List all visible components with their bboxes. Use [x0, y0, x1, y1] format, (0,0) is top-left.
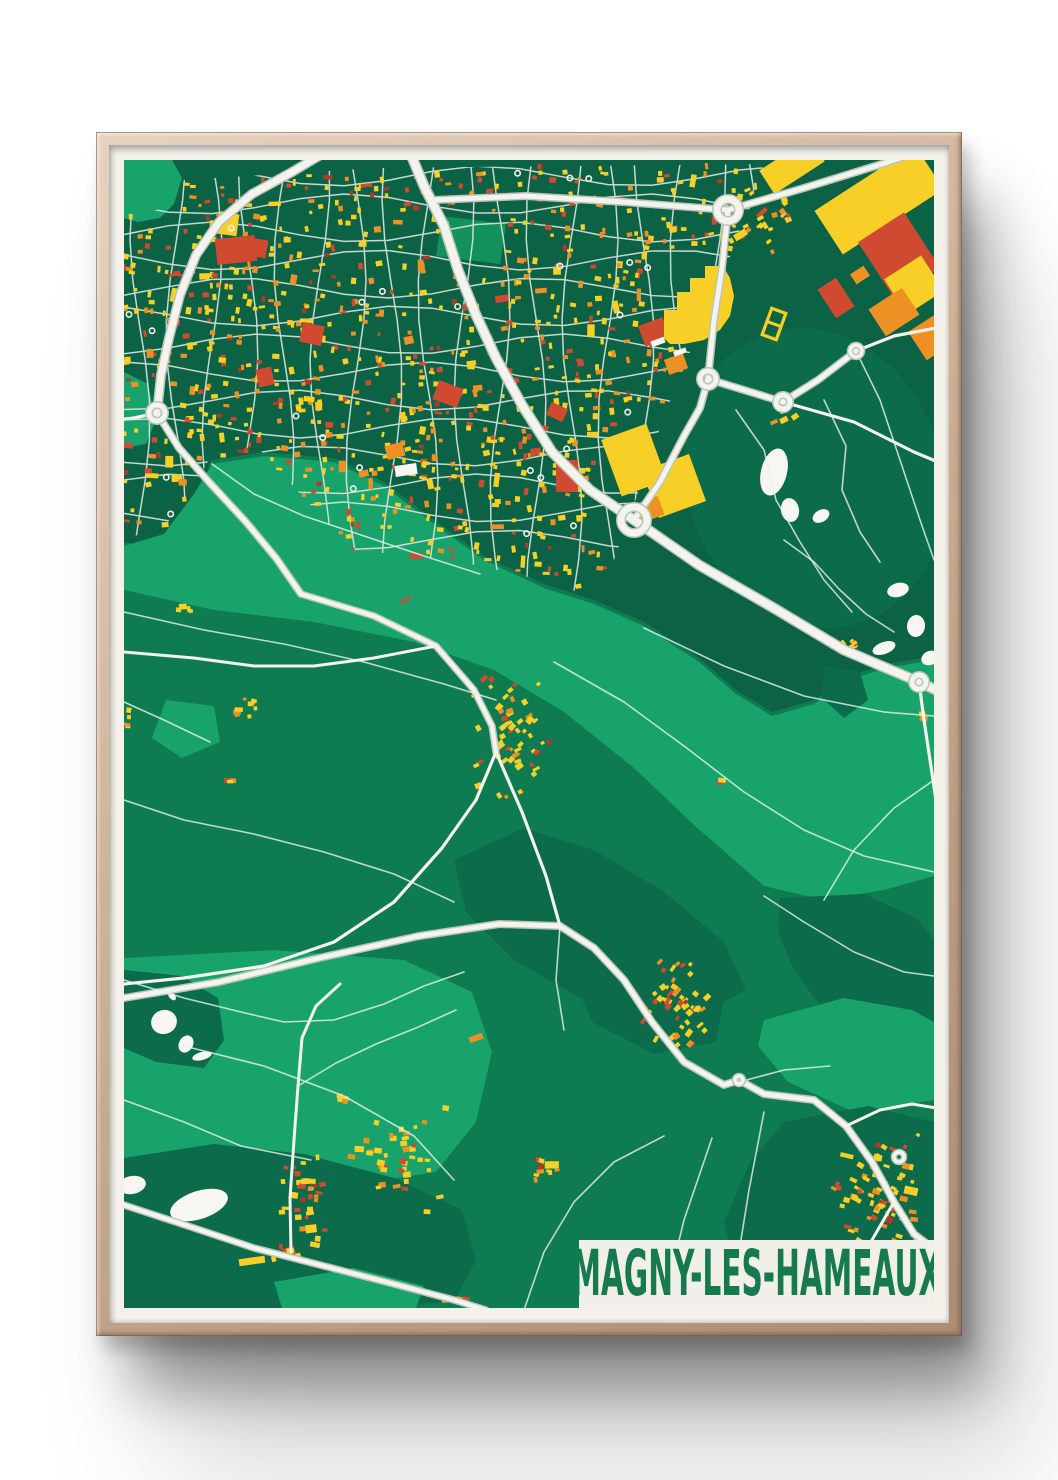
wall-background: { "poster": { "title": "MAGNY-LES-HAMEAU…: [0, 0, 1058, 1480]
map-title-banner: MAGNY-LES-HAMEAUX: [579, 1240, 934, 1308]
poster-matte: MAGNY-LES-HAMEAUX: [109, 145, 949, 1323]
poster-frame: MAGNY-LES-HAMEAUX: [96, 132, 962, 1336]
map-poster: MAGNY-LES-HAMEAUX: [124, 160, 934, 1308]
map-title: MAGNY-LES-HAMEAUX: [579, 1240, 934, 1308]
city-map-graphic: [124, 160, 934, 1308]
